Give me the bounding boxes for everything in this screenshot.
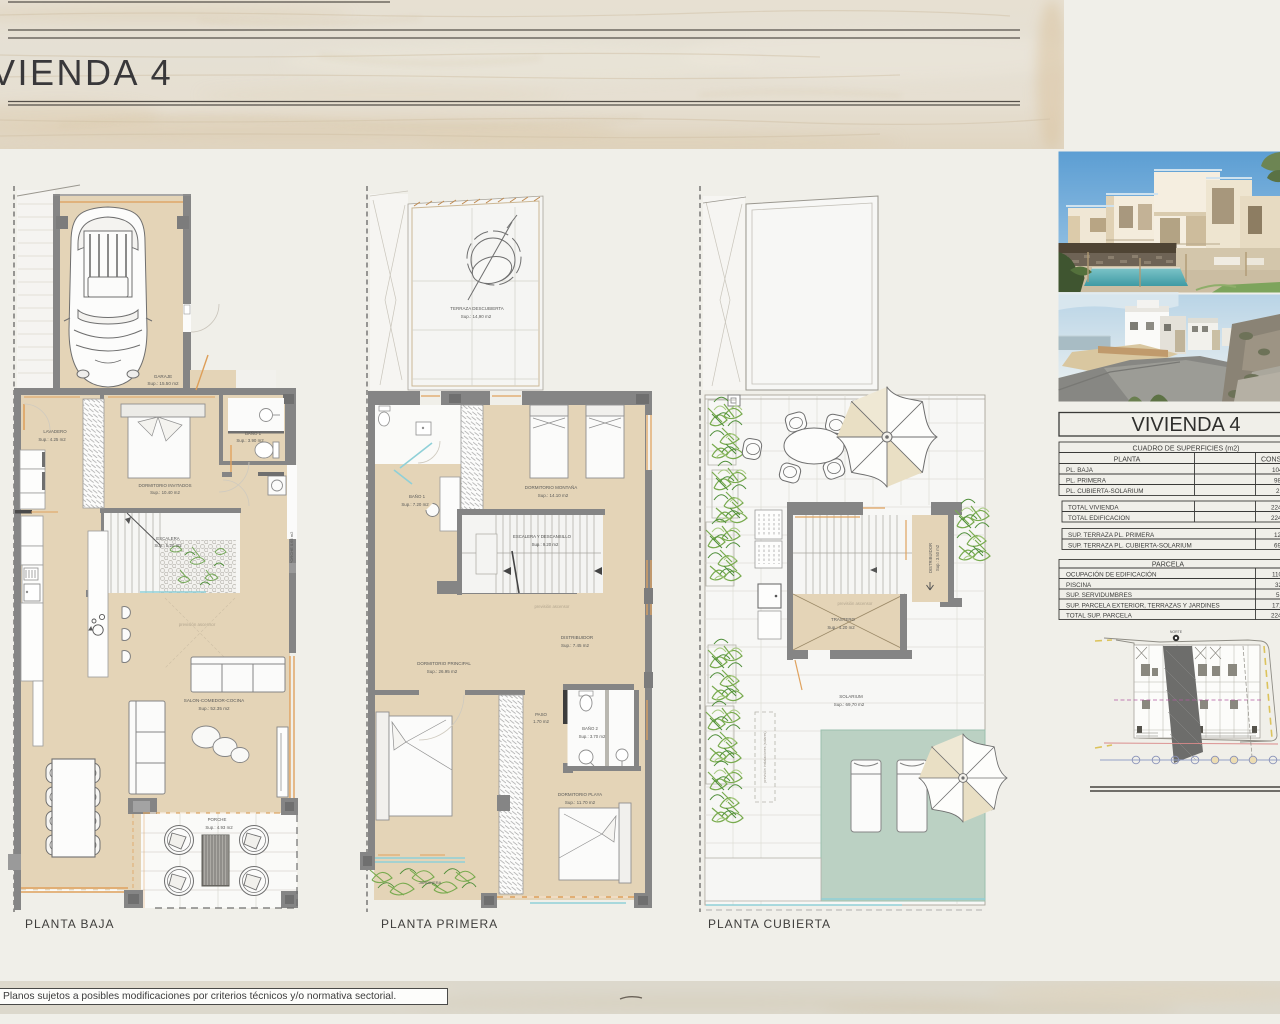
svg-text:BAÑO 2: BAÑO 2: [582, 726, 598, 731]
svg-text:32.70: 32.70: [1275, 582, 1280, 589]
svg-text:Sup.: 4.93 m2: Sup.: 4.93 m2: [205, 825, 233, 830]
svg-text:TERRAZA DESCUBIERTA: TERRAZA DESCUBIERTA: [450, 306, 504, 311]
svg-text:JARDINERA: JARDINERA: [419, 880, 442, 885]
svg-text:Sup.: 52.35 m2: Sup.: 52.35 m2: [198, 706, 230, 711]
svg-text:PL. CUBIERTA-SOLARIUM: PL. CUBIERTA-SOLARIUM: [1066, 488, 1143, 495]
svg-text:110.45: 110.45: [1272, 571, 1280, 578]
svg-text:TOTAL VIVIENDA: TOTAL VIVIENDA: [1068, 504, 1119, 511]
svg-text:BAÑO 1: BAÑO 1: [409, 494, 426, 499]
svg-text:SUP. SERVIDUMBRES: SUP. SERVIDUMBRES: [1066, 592, 1132, 599]
svg-text:previsión ascensor: previsión ascensor: [838, 601, 874, 606]
svg-text:PORCHE: PORCHE: [208, 817, 227, 822]
svg-text:LAVADERO: LAVADERO: [43, 429, 67, 434]
svg-text:Sup.: 7.20 m2: Sup.: 7.20 m2: [401, 502, 429, 507]
svg-text:previsión ascensor: previsión ascensor: [179, 622, 216, 627]
svg-text:224.05: 224.05: [1271, 504, 1280, 511]
svg-text:DORMITORIO PLAYA: DORMITORIO PLAYA: [558, 792, 602, 797]
svg-text:GARAJE: GARAJE: [154, 374, 172, 379]
svg-text:Sup.: 4.20 m2: Sup.: 4.20 m2: [827, 625, 855, 630]
svg-text:1.70 m2: 1.70 m2: [533, 719, 549, 724]
svg-text:NORTE: NORTE: [1170, 630, 1183, 634]
svg-text:104.60: 104.60: [1272, 467, 1280, 474]
svg-text:previsión ascensor: previsión ascensor: [535, 604, 571, 609]
svg-text:VIVIENDA 4: VIVIENDA 4: [0, 52, 173, 93]
svg-text:SUP. PARCELA EXTERIOR, TERRAZA: SUP. PARCELA EXTERIOR, TERRAZAS Y JARDIN…: [1066, 602, 1220, 609]
svg-text:Sup.: 5.20 m2: Sup.: 5.20 m2: [154, 543, 182, 548]
svg-text:98.15: 98.15: [1274, 477, 1280, 484]
svg-text:SUP. TERRAZA PL. PRIMERA: SUP. TERRAZA PL. PRIMERA: [1068, 532, 1155, 539]
svg-text:DISTRIBUIDOR: DISTRIBUIDOR: [561, 635, 594, 640]
svg-text:Sup.: 9.20 m2: Sup.: 9.20 m2: [532, 542, 559, 547]
svg-text:Sup.: 11.70 m2: Sup.: 11.70 m2: [565, 800, 596, 805]
svg-text:Sup.: 4.25 m2: Sup.: 4.25 m2: [38, 437, 66, 442]
svg-text:Sup.: 10.40 m2: Sup.: 10.40 m2: [150, 490, 180, 495]
svg-text:Sup.: 3.70 m2: Sup.: 3.70 m2: [579, 734, 606, 739]
svg-text:previsión instalaciones (solar: previsión instalaciones (solares): [763, 731, 767, 782]
svg-text:BAÑO 1: BAÑO 1: [245, 431, 262, 436]
svg-text:SALON-COMEDOR-COCINA: SALON-COMEDOR-COCINA: [184, 698, 245, 703]
svg-text:PARCELA: PARCELA: [1152, 561, 1184, 568]
svg-text:PLANTA: PLANTA: [1114, 457, 1141, 464]
svg-text:PL. PRIMERA: PL. PRIMERA: [1066, 477, 1107, 484]
svg-text:12.85: 12.85: [1274, 532, 1280, 539]
svg-text:SOLARIUM: SOLARIUM: [839, 694, 863, 699]
svg-text:Sup.: 7.45 m2: Sup.: 7.45 m2: [561, 643, 590, 648]
svg-text:PISCINA: PISCINA: [1066, 582, 1092, 589]
svg-text:5.05: 5.05: [1276, 592, 1280, 599]
svg-text:CONSTRUIDA: CONSTRUIDA: [1261, 457, 1280, 464]
svg-text:DORMITORIO MONTAÑA: DORMITORIO MONTAÑA: [525, 484, 578, 490]
svg-text:224.05: 224.05: [1271, 515, 1280, 522]
svg-text:TRASTERO: TRASTERO: [831, 617, 855, 622]
svg-text:CUADRO DE SUPERFICIES (m2): CUADRO DE SUPERFICIES (m2): [1133, 446, 1240, 453]
svg-text:224.55: 224.55: [1271, 612, 1280, 619]
svg-text:TOTAL SUP. PARCELA: TOTAL SUP. PARCELA: [1066, 612, 1133, 619]
svg-text:ESCALERA: ESCALERA: [156, 536, 179, 541]
svg-text:VIVIENDA 4: VIVIENDA 4: [1132, 414, 1241, 436]
svg-text:Sup.: 26.95 m2: Sup.: 26.95 m2: [427, 669, 458, 674]
svg-text:TOTAL EDIFICACION: TOTAL EDIFICACION: [1068, 515, 1130, 522]
svg-text:PORCHE 0.65 m2: PORCHE 0.65 m2: [289, 531, 294, 564]
svg-text:Sup.: 69,70 m2: Sup.: 69,70 m2: [834, 702, 865, 707]
svg-text:ESCALERA Y DESCANSILLO: ESCALERA Y DESCANSILLO: [513, 534, 572, 539]
svg-text:DISTRIBUIDOR: DISTRIBUIDOR: [928, 543, 933, 573]
svg-text:DORMITORIO PRINCIPAL: DORMITORIO PRINCIPAL: [417, 661, 471, 666]
svg-text:Sup.: 3.50 m2: Sup.: 3.50 m2: [935, 544, 940, 571]
svg-text:171.35: 171.35: [1272, 602, 1280, 609]
svg-text:PL. BAJA: PL. BAJA: [1066, 467, 1094, 474]
svg-text:SUP. TERRAZA PL. CUBIERTA-SOLA: SUP. TERRAZA PL. CUBIERTA-SOLARIUM: [1068, 542, 1192, 549]
svg-text:Sup.: 3.90 m2: Sup.: 3.90 m2: [236, 438, 264, 443]
svg-text:Sup.: 14.10 m2: Sup.: 14.10 m2: [538, 493, 569, 498]
svg-text:DORMITORIO INVITADOS: DORMITORIO INVITADOS: [138, 483, 191, 488]
svg-text:Sup.: 15.50 m2: Sup.: 15.50 m2: [147, 381, 179, 386]
svg-text:Sup.: 14,90 m2: Sup.: 14,90 m2: [461, 314, 492, 319]
svg-text:69.70: 69.70: [1274, 542, 1280, 549]
svg-text:OCUPACIÓN DE EDIFICACIÓN: OCUPACIÓN DE EDIFICACIÓN: [1066, 569, 1157, 578]
svg-text:21.30: 21.30: [1276, 488, 1280, 495]
svg-text:PASO: PASO: [535, 712, 547, 717]
